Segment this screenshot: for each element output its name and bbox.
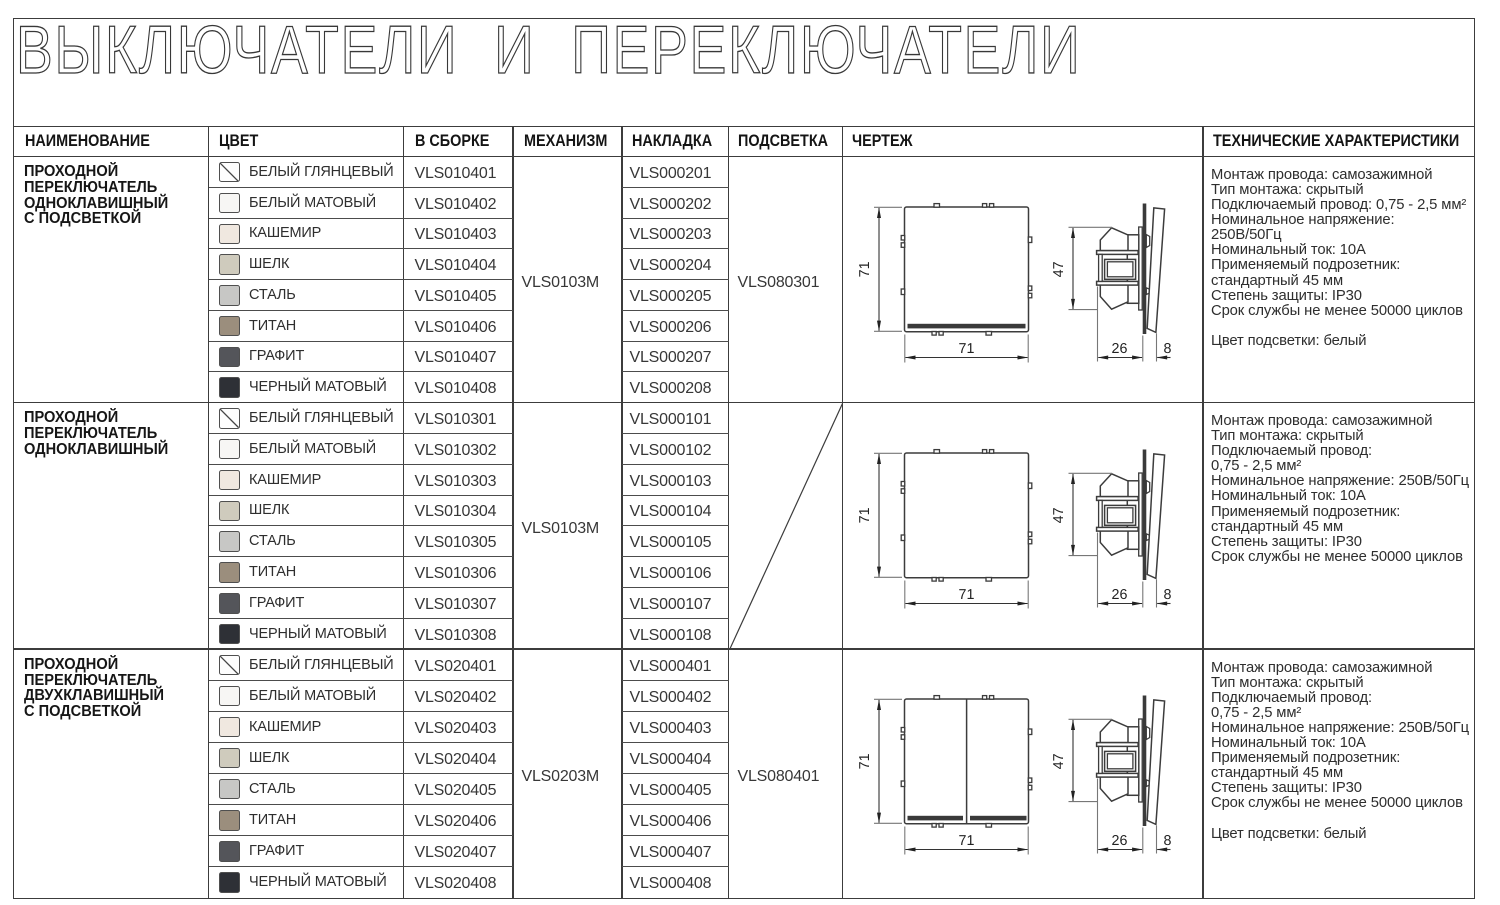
svg-text:71: 71 xyxy=(959,833,975,849)
svg-text:71: 71 xyxy=(857,507,873,523)
svg-text:71: 71 xyxy=(857,261,873,277)
svg-text:71: 71 xyxy=(959,340,975,356)
svg-text:26: 26 xyxy=(1112,340,1128,356)
svg-text:26: 26 xyxy=(1112,587,1128,603)
svg-text:47: 47 xyxy=(1051,507,1067,523)
svg-text:47: 47 xyxy=(1051,754,1067,770)
svg-text:26: 26 xyxy=(1112,833,1128,849)
svg-text:8: 8 xyxy=(1164,340,1172,356)
svg-text:71: 71 xyxy=(959,587,975,603)
svg-text:47: 47 xyxy=(1051,261,1067,277)
svg-text:8: 8 xyxy=(1164,833,1172,849)
svg-text:71: 71 xyxy=(857,754,873,770)
svg-text:8: 8 xyxy=(1164,587,1172,603)
